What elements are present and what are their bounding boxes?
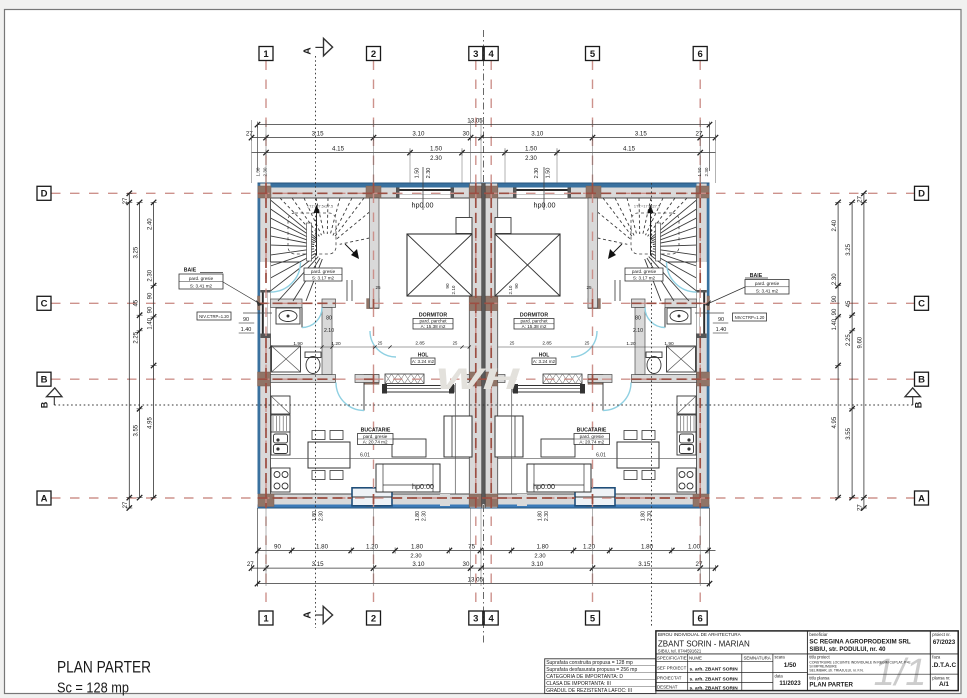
svg-text:6.01: 6.01: [360, 453, 370, 459]
svg-text:SELIMBAR, str. TRIAJULUI, nr.: SELIMBAR, str. TRIAJULUI, nr. F.N.: [809, 669, 863, 673]
svg-text:A: 15.38 m2: A: 15.38 m2: [522, 324, 547, 329]
svg-text:A: A: [303, 47, 314, 54]
svg-text:beneficiar: beneficiar: [809, 632, 828, 637]
svg-text:4.15: 4.15: [623, 146, 636, 153]
svg-text:1.80: 1.80: [641, 511, 647, 521]
svg-text:3: 3: [473, 49, 478, 60]
svg-text:1T1'=17.5x27.5: 1T1'=17.5x27.5: [307, 205, 333, 209]
svg-text:1.40: 1.40: [147, 317, 153, 329]
svg-text:25: 25: [375, 285, 381, 290]
svg-text:s. arh. ZBANT SORIN: s. arh. ZBANT SORIN: [690, 677, 739, 683]
svg-text:CLASA DE IMPORTANTA: III: CLASA DE IMPORTANTA: III: [546, 681, 611, 687]
svg-text:Suprafata construita propusa =: Suprafata construita propusa = 128 mp: [546, 660, 633, 666]
svg-text:SIBIU, str. PODULUI, nr. 40: SIBIU, str. PODULUI, nr. 40: [809, 647, 886, 653]
svg-text:hp0.00: hp0.00: [412, 201, 434, 210]
svg-text:pard. gresie: pard. gresie: [189, 276, 214, 281]
svg-text:scara: scara: [775, 655, 786, 660]
svg-text:.D.T.A.C: .D.T.A.C: [932, 662, 957, 669]
svg-text:2.85: 2.85: [542, 341, 552, 347]
svg-text:1.40: 1.40: [716, 327, 727, 333]
svg-text:C: C: [41, 299, 48, 310]
svg-text:1T1'=17.5x27.5: 1T1'=17.5x27.5: [634, 205, 660, 209]
svg-text:A: 3.24 m2: A: 3.24 m2: [412, 359, 435, 364]
svg-text:DORMITOR: DORMITOR: [520, 313, 548, 319]
svg-text:titlu plansa: titlu plansa: [809, 676, 830, 681]
svg-text:67/2023: 67/2023: [933, 639, 956, 646]
svg-text:S: 3.17 m2: S: 3.17 m2: [312, 276, 335, 281]
svg-text:3.10: 3.10: [531, 131, 544, 138]
svg-text:proiect nr.: proiect nr.: [932, 632, 950, 637]
svg-text:3.10: 3.10: [412, 131, 425, 138]
svg-text:2.30: 2.30: [647, 511, 653, 521]
svg-text:11/2023: 11/2023: [779, 681, 801, 687]
svg-text:3.25: 3.25: [846, 243, 852, 255]
svg-text:2: 2: [371, 613, 376, 624]
svg-text:NIV.CTRP=1.20: NIV.CTRP=1.20: [199, 314, 229, 319]
svg-text:3.15: 3.15: [312, 131, 325, 138]
svg-text:90: 90: [832, 308, 838, 315]
svg-text:45: 45: [846, 300, 852, 307]
svg-text:90: 90: [718, 317, 724, 323]
svg-text:1.00: 1.00: [688, 544, 701, 551]
svg-text:PROIECTAT: PROIECTAT: [657, 676, 682, 681]
svg-text:90: 90: [274, 544, 281, 551]
svg-text:A/1: A/1: [939, 681, 949, 688]
svg-text:C: C: [918, 299, 925, 310]
svg-text:hp0.00: hp0.00: [412, 482, 434, 491]
svg-text:BUCATARIE: BUCATARIE: [577, 428, 607, 434]
svg-text:ZBANT SORIN - MARIAN: ZBANT SORIN - MARIAN: [658, 640, 750, 649]
svg-text:BAIE: BAIE: [184, 268, 197, 274]
svg-text:1.50: 1.50: [697, 167, 702, 176]
svg-text:2.10: 2.10: [633, 328, 643, 334]
svg-text:3.15: 3.15: [638, 561, 651, 568]
svg-text:2.25: 2.25: [133, 331, 139, 343]
svg-text:1.50: 1.50: [415, 168, 421, 179]
svg-text:30: 30: [463, 131, 470, 138]
svg-text:4.95: 4.95: [832, 416, 838, 428]
svg-text:1/50: 1/50: [784, 662, 797, 669]
svg-text:2: 2: [371, 49, 376, 60]
svg-text:2.30: 2.30: [263, 167, 268, 176]
svg-text:2.30: 2.30: [410, 554, 421, 560]
svg-text:2.30: 2.30: [544, 511, 550, 521]
svg-text:3.25: 3.25: [133, 246, 139, 258]
svg-text:6: 6: [698, 49, 703, 60]
svg-text:1.80: 1.80: [536, 544, 549, 551]
svg-text:3.10: 3.10: [531, 561, 544, 568]
svg-text:NUME: NUME: [689, 656, 702, 661]
svg-text:NIV.CTRP=1.20: NIV.CTRP=1.20: [735, 315, 765, 320]
svg-text:30: 30: [463, 561, 470, 568]
svg-text:pard. gresie: pard. gresie: [311, 269, 336, 274]
svg-text:BIROU INDIVIDUAL DE ARHITECTUR: BIROU INDIVIDUAL DE ARHITECTURA: [658, 632, 742, 637]
svg-text:1.90: 1.90: [293, 341, 303, 347]
svg-text:BUCATARIE: BUCATARIE: [361, 428, 391, 434]
svg-text:5: 5: [590, 613, 596, 624]
svg-text:1/1: 1/1: [874, 652, 927, 694]
svg-text:2.30: 2.30: [430, 156, 442, 162]
svg-text:A: A: [41, 493, 48, 504]
svg-text:25: 25: [510, 341, 515, 346]
svg-text:2.40: 2.40: [147, 218, 153, 230]
svg-text:1.20: 1.20: [331, 341, 341, 347]
svg-text:data: data: [775, 674, 784, 679]
svg-text:S: 3.41 m2: S: 3.41 m2: [190, 283, 213, 288]
svg-text:2.30: 2.30: [147, 269, 153, 281]
svg-text:2.10: 2.10: [451, 285, 456, 294]
svg-text:6.01: 6.01: [596, 453, 606, 459]
svg-text:DESENAT: DESENAT: [657, 685, 678, 690]
svg-text:1.80: 1.80: [312, 511, 318, 521]
svg-text:75: 75: [468, 544, 475, 551]
svg-text:2.30: 2.30: [534, 168, 540, 179]
svg-text:SEF PROIECT: SEF PROIECT: [657, 666, 687, 671]
svg-text:B: B: [918, 375, 925, 386]
svg-text:faza: faza: [932, 655, 941, 660]
svg-text:1.40: 1.40: [832, 318, 838, 330]
svg-text:B: B: [40, 401, 50, 408]
svg-text:GRADUL DE REZISTENTA LAFOC: II: GRADUL DE REZISTENTA LAFOC: III: [546, 688, 632, 694]
svg-text:2.25: 2.25: [846, 334, 852, 346]
svg-text:1.80: 1.80: [411, 544, 424, 551]
svg-text:2.30: 2.30: [319, 511, 325, 521]
svg-text:5: 5: [590, 49, 596, 60]
svg-text:3.15: 3.15: [312, 561, 325, 568]
svg-text:SEMNATURA: SEMNATURA: [744, 656, 771, 661]
svg-text:PLAN PARTER: PLAN PARTER: [57, 658, 151, 677]
svg-text:2.30: 2.30: [704, 167, 709, 176]
svg-text:S: 3.17 m2: S: 3.17 m2: [633, 276, 656, 281]
svg-text:3.55: 3.55: [133, 424, 139, 436]
svg-text:s. arh. ZBANT SORIN: s. arh. ZBANT SORIN: [690, 685, 739, 691]
svg-text:1.20: 1.20: [583, 544, 596, 551]
svg-text:1.80: 1.80: [538, 511, 544, 521]
svg-text:2.30: 2.30: [426, 168, 432, 179]
svg-text:PLAN PARTER: PLAN PARTER: [809, 682, 853, 689]
svg-text:SPECIFICATIE: SPECIFICATIE: [657, 656, 687, 661]
svg-text:1.50: 1.50: [525, 146, 538, 153]
svg-text:6: 6: [698, 613, 703, 624]
svg-text:90: 90: [147, 292, 153, 299]
svg-text:25: 25: [378, 341, 383, 346]
svg-text:A: 20.74 m2: A: 20.74 m2: [363, 439, 388, 444]
svg-text:hp0.00: hp0.00: [534, 201, 556, 210]
svg-text:B: B: [41, 375, 48, 386]
svg-text:A: A: [918, 493, 925, 504]
svg-text:1.20: 1.20: [366, 544, 379, 551]
svg-text:80: 80: [635, 316, 641, 322]
svg-text:2.85: 2.85: [415, 341, 425, 347]
svg-text:2.30: 2.30: [534, 554, 545, 560]
svg-text:B: B: [914, 401, 924, 408]
svg-text:A: A: [303, 611, 314, 618]
svg-text:D: D: [918, 189, 925, 200]
svg-text:Sc = 128 mp: Sc = 128 mp: [57, 680, 129, 697]
svg-text:CATEGORIA DE IMPORTANTA: D: CATEGORIA DE IMPORTANTA: D: [546, 674, 623, 680]
svg-text:s. arh. ZBANT SORIN: s. arh. ZBANT SORIN: [690, 667, 739, 673]
svg-text:2.30: 2.30: [525, 156, 537, 162]
svg-text:4.15: 4.15: [332, 146, 345, 153]
svg-text:1.50: 1.50: [430, 146, 443, 153]
svg-text:1.90: 1.90: [664, 341, 674, 347]
svg-text:90: 90: [832, 295, 838, 302]
svg-text:27: 27: [123, 197, 129, 204]
svg-text:3.10: 3.10: [412, 561, 425, 568]
svg-text:WH: WH: [435, 363, 521, 396]
svg-text:pard. gresie: pard. gresie: [363, 434, 388, 439]
svg-text:27: 27: [123, 501, 129, 508]
svg-text:3.55: 3.55: [846, 427, 852, 439]
svg-text:80: 80: [326, 316, 332, 322]
svg-text:2.10: 2.10: [324, 328, 334, 334]
svg-text:A: 20.74 m2: A: 20.74 m2: [579, 439, 604, 444]
svg-text:SC REGINA AGROPRODEXIM SRL: SC REGINA AGROPRODEXIM SRL: [809, 639, 911, 646]
svg-text:2.40: 2.40: [832, 219, 838, 231]
svg-text:3.15: 3.15: [635, 131, 648, 138]
svg-text:1.80: 1.80: [415, 511, 421, 521]
svg-text:hp0.00: hp0.00: [533, 482, 555, 491]
svg-text:1.50: 1.50: [256, 167, 261, 176]
svg-text:D: D: [41, 189, 48, 200]
svg-text:25: 25: [585, 341, 590, 346]
svg-text:pard. gresie: pard. gresie: [580, 434, 605, 439]
svg-text:titlu proiect: titlu proiect: [809, 655, 830, 660]
svg-text:27: 27: [247, 561, 254, 568]
svg-text:SIBIU, tel. 0744591621: SIBIU, tel. 0744591621: [658, 649, 702, 654]
svg-text:90: 90: [243, 317, 249, 323]
svg-text:4: 4: [489, 49, 495, 60]
svg-text:1.80: 1.80: [316, 544, 329, 551]
svg-text:2.10: 2.10: [508, 285, 513, 294]
svg-text:1: 1: [263, 49, 269, 60]
svg-text:4: 4: [489, 613, 495, 624]
svg-text:pard. gresie: pard. gresie: [755, 281, 780, 286]
svg-text:DORMITOR: DORMITOR: [419, 313, 447, 319]
svg-text:9.60: 9.60: [858, 336, 864, 348]
svg-text:2.30: 2.30: [832, 273, 838, 285]
svg-text:pard. gresie: pard. gresie: [632, 269, 657, 274]
svg-text:Suprafata desfasurata propusa: Suprafata desfasurata propusa = 256 mp: [546, 667, 637, 673]
svg-text:1.20: 1.20: [626, 341, 636, 347]
svg-text:90: 90: [514, 283, 519, 289]
svg-text:2.30: 2.30: [422, 511, 428, 521]
svg-text:3: 3: [473, 613, 478, 624]
svg-text:27: 27: [858, 504, 864, 511]
svg-text:27: 27: [696, 131, 703, 138]
svg-text:45: 45: [133, 299, 139, 306]
svg-text:90: 90: [445, 283, 450, 289]
svg-text:1.50: 1.50: [546, 168, 552, 179]
svg-text:4.95: 4.95: [147, 417, 153, 429]
svg-text:25: 25: [586, 285, 592, 290]
svg-text:plansa nr.: plansa nr.: [932, 676, 950, 681]
svg-text:1.80: 1.80: [641, 544, 654, 551]
svg-text:1: 1: [263, 613, 269, 624]
svg-text:25: 25: [453, 341, 458, 346]
svg-text:27: 27: [246, 131, 253, 138]
svg-text:1.40: 1.40: [241, 327, 252, 333]
svg-text:A: 15.38 m2: A: 15.38 m2: [421, 324, 446, 329]
svg-text:S: 3.41 m2: S: 3.41 m2: [756, 288, 779, 293]
svg-text:27: 27: [696, 561, 703, 568]
svg-text:A: 3.24 m2: A: 3.24 m2: [533, 359, 556, 364]
svg-text:27: 27: [858, 195, 864, 202]
svg-text:90: 90: [147, 306, 153, 313]
